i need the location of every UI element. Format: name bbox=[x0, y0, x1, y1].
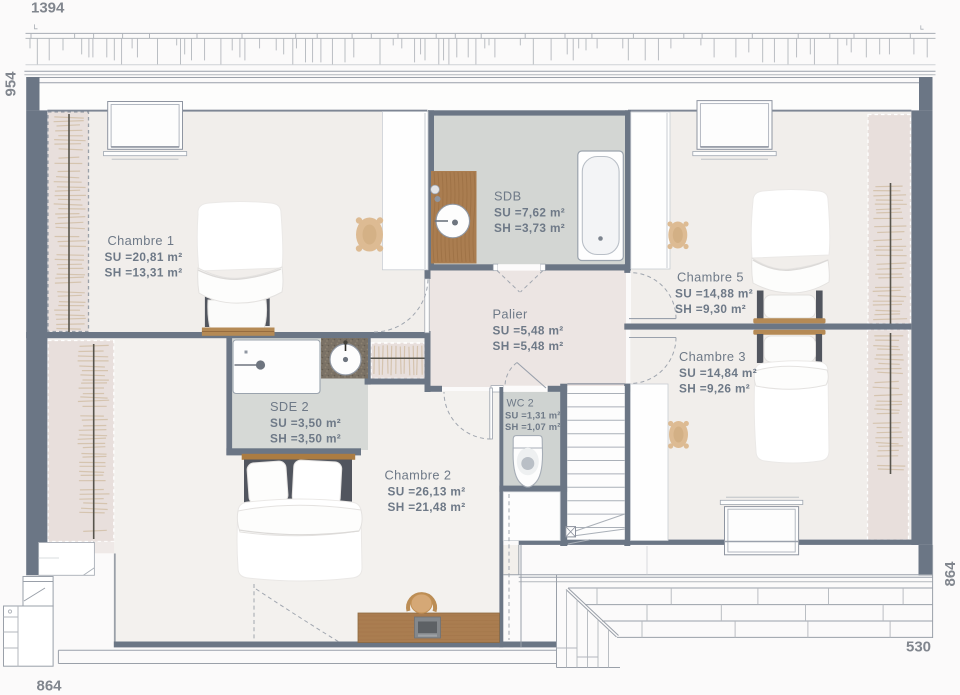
svg-text:SH =1,07 m²: SH =1,07 m² bbox=[505, 421, 561, 432]
svg-text:SU =14,84 m²: SU =14,84 m² bbox=[679, 366, 757, 380]
svg-text:SU =3,50 m²: SU =3,50 m² bbox=[270, 416, 341, 430]
svg-text:SU =7,62 m²: SU =7,62 m² bbox=[494, 206, 565, 220]
svg-text:864: 864 bbox=[942, 561, 959, 587]
svg-text:SH =21,48 m²: SH =21,48 m² bbox=[388, 500, 466, 514]
svg-text:SU =20,81 m²: SU =20,81 m² bbox=[105, 250, 183, 264]
svg-text:Chambre 2: Chambre 2 bbox=[385, 468, 452, 483]
svg-text:SH =13,31 m²: SH =13,31 m² bbox=[105, 266, 183, 280]
svg-text:864: 864 bbox=[37, 678, 63, 695]
svg-text:SH =3,73 m²: SH =3,73 m² bbox=[494, 221, 565, 235]
svg-text:1394: 1394 bbox=[31, 0, 65, 17]
svg-text:Palier: Palier bbox=[493, 307, 528, 322]
svg-text:SU =14,88 m²: SU =14,88 m² bbox=[675, 287, 753, 301]
svg-text:Chambre 5: Chambre 5 bbox=[677, 270, 744, 285]
svg-text:SU =26,13 m²: SU =26,13 m² bbox=[388, 485, 466, 499]
svg-text:SH =5,48 m²: SH =5,48 m² bbox=[493, 339, 564, 353]
svg-text:530: 530 bbox=[906, 639, 931, 656]
svg-text:Chambre 1: Chambre 1 bbox=[108, 233, 175, 248]
svg-text:SU =5,48 m²: SU =5,48 m² bbox=[493, 324, 564, 338]
svg-text:Chambre 3: Chambre 3 bbox=[679, 349, 746, 364]
svg-text:SH =3,50 m²: SH =3,50 m² bbox=[270, 432, 341, 446]
svg-text:SH =9,30 m²: SH =9,30 m² bbox=[675, 302, 746, 316]
svg-text:SH =9,26 m²: SH =9,26 m² bbox=[679, 382, 750, 396]
svg-text:SDE 2: SDE 2 bbox=[270, 399, 309, 414]
svg-text:SU =1,31 m²: SU =1,31 m² bbox=[505, 410, 561, 421]
svg-text:954: 954 bbox=[3, 71, 20, 97]
svg-text:SDB: SDB bbox=[494, 189, 522, 204]
svg-text:WC 2: WC 2 bbox=[507, 398, 534, 410]
